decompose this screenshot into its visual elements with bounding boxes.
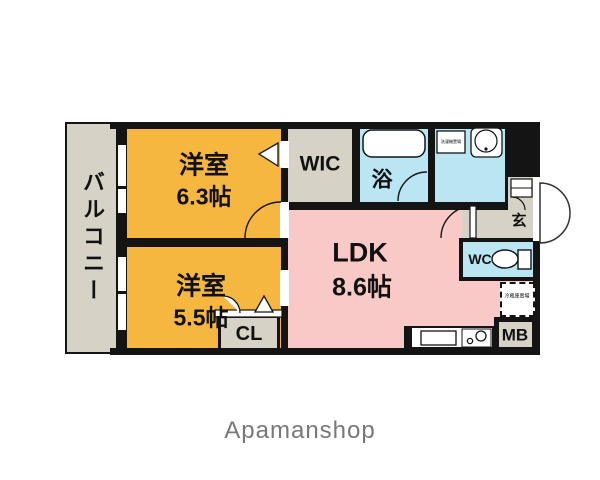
wall-bath-right — [428, 122, 435, 210]
entrance-door-swing-icon — [540, 183, 570, 243]
wall-entrance-left — [505, 177, 508, 210]
wall-bedroom-divider — [117, 238, 288, 247]
bedroom1-size: 6.3帖 — [177, 186, 232, 209]
wall-wc-left — [459, 238, 463, 281]
ldk-size: 8.6帖 — [332, 276, 392, 301]
wall-hall-bottom — [459, 238, 540, 242]
entrance-label: 玄 — [511, 214, 526, 229]
hallway-area — [462, 209, 508, 238]
wall-bottom — [110, 348, 540, 355]
balcony-label: バルコニー — [81, 171, 103, 306]
wic-label: WIC — [300, 154, 341, 175]
wall-below-wic-bath — [281, 202, 508, 210]
fridge-space-label: 冷蔵庫置場 — [504, 295, 529, 300]
bedroom1-label: 洋室 — [179, 154, 229, 179]
bath-area — [360, 128, 428, 203]
pipe-space-area — [505, 122, 540, 177]
door-gap-entrance — [533, 181, 540, 241]
washer-space-label: 洗濯機置場 — [441, 140, 461, 144]
meter-box-label: MB — [502, 327, 528, 344]
fridge-space-box — [500, 282, 535, 317]
bedroom2-size: 5.5帖 — [174, 307, 229, 330]
door-gap-bedroom2 — [280, 270, 289, 306]
wall-wic-right — [352, 122, 360, 210]
floor-plan: バルコニー 洋室 6.3帖 洋室 5.5帖 LDK 8.6帖 WIC 浴 CL … — [0, 0, 600, 480]
window-bedroom1 — [117, 144, 127, 214]
brand-logo: Apamanshop — [224, 417, 375, 445]
bedroom2-label: 洋室 — [176, 275, 226, 300]
kitchen-counter — [410, 326, 494, 349]
bath-label: 浴 — [372, 170, 393, 191]
wall-wc-bottom — [459, 277, 540, 281]
door-gap-wic — [280, 141, 289, 168]
window-bedroom2-tick — [117, 291, 127, 294]
door-gap-bedroom1 — [280, 202, 289, 238]
closet-label: CL — [236, 324, 263, 344]
wc-label: WC — [468, 252, 491, 266]
wall-top — [110, 122, 540, 129]
ldk-label: LDK — [332, 240, 388, 267]
window-bedroom1-tick — [117, 186, 127, 189]
